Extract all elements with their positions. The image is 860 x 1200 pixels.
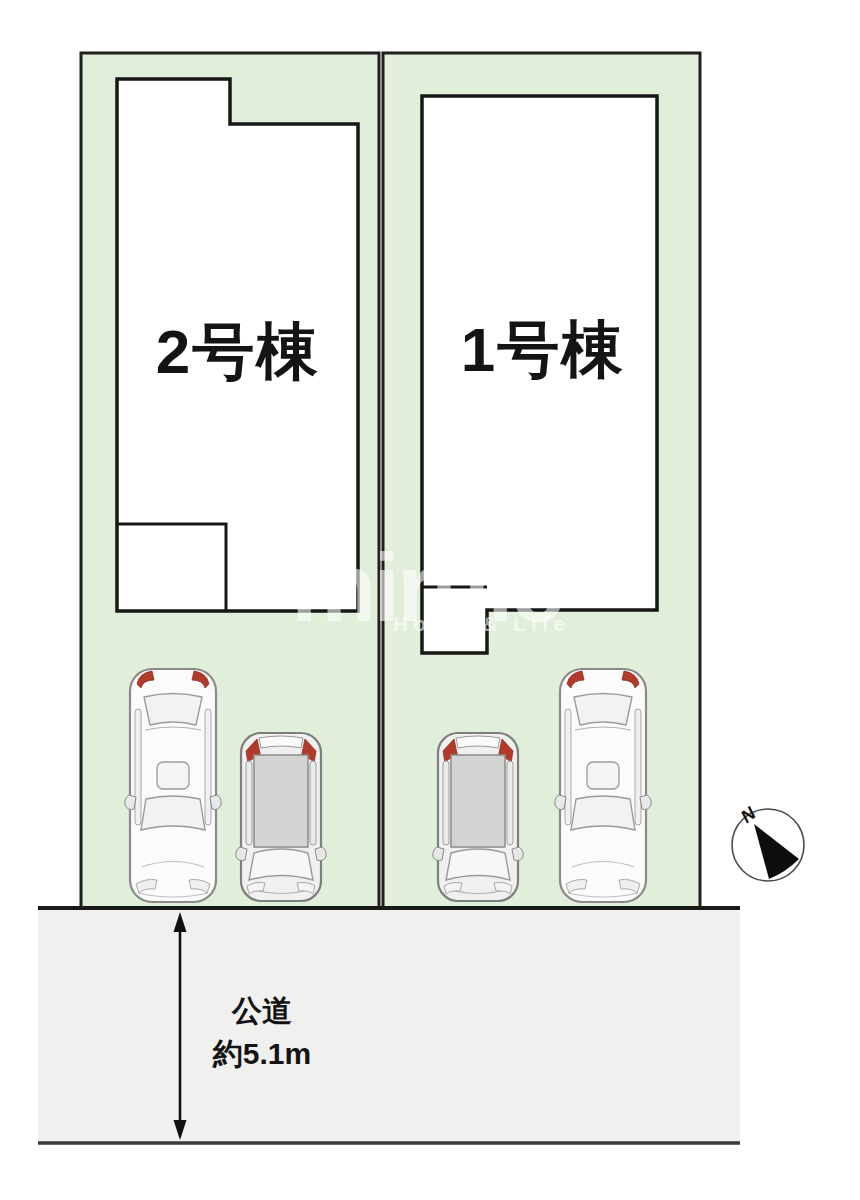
building-2-label: 2号棟 xyxy=(156,310,320,394)
site-plan-canvas: miruie Home & Life 2号棟 1号棟 公道 約5.1m N xyxy=(0,0,860,1200)
site-plan-drawing xyxy=(0,0,860,1200)
car-sedan-left-icon xyxy=(125,669,221,902)
car-compact-left-icon xyxy=(236,733,326,901)
building-1-label: 1号棟 xyxy=(461,308,625,392)
road-area xyxy=(38,908,740,1144)
road-name-label: 公道 xyxy=(232,991,292,1032)
road-width-label: 約5.1m xyxy=(213,1034,311,1075)
car-sedan-right-icon xyxy=(555,669,651,902)
car-compact-right-icon xyxy=(433,733,523,901)
